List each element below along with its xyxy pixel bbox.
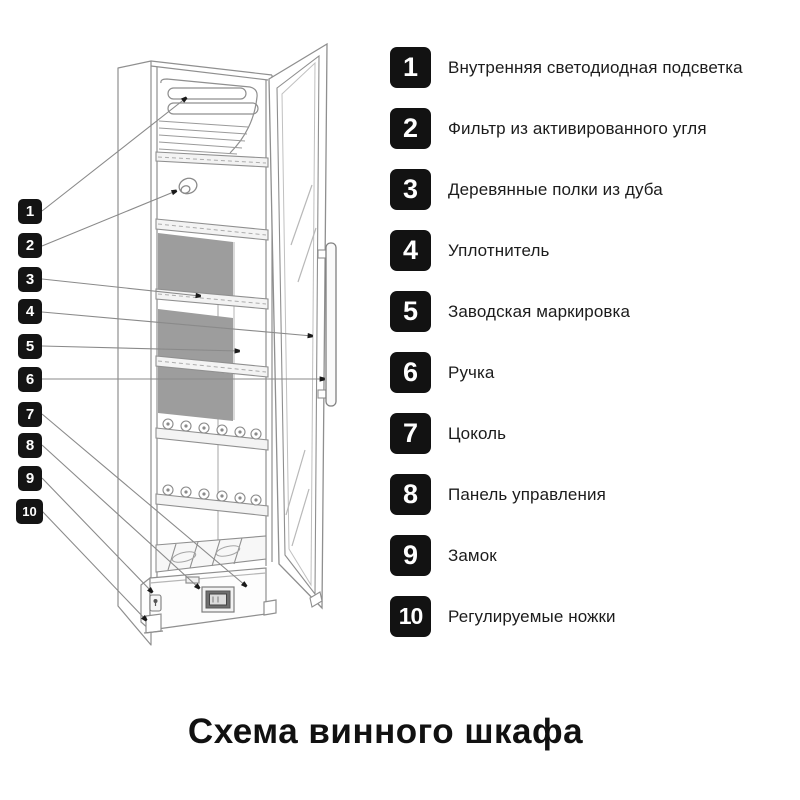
legend: 1 Внутренняя светодиодная подсветка 2 Фи… [390,47,743,657]
legend-row-6: 6 Ручка [390,352,743,393]
callout-badge-1: 1 [18,199,42,224]
callout-badge-4: 4 [18,299,42,324]
legend-row-7: 7 Цоколь [390,413,743,454]
legend-row-1: 1 Внутренняя светодиодная подсветка [390,47,743,88]
page-title: Схема винного шкафа [0,712,800,752]
cooling-fins [159,121,248,154]
legend-row-9: 9 Замок [390,535,743,576]
legend-badge-3: 3 [390,169,431,210]
legend-badge-7: 7 [390,413,431,454]
lock [150,595,161,611]
legend-label-9: Замок [448,546,497,566]
factory-marking-panel [158,309,233,364]
callout-badge-6: 6 [18,367,42,392]
glass-door [269,44,327,608]
legend-label-4: Уплотнитель [448,241,549,261]
legend-row-5: 5 Заводская маркировка [390,291,743,332]
callout-badge-2: 2 [18,233,42,258]
callout-badge-9: 9 [18,466,42,491]
carbon-filter [177,176,199,196]
legend-row-8: 8 Панель управления [390,474,743,515]
legend-badge-10: 10 [390,596,431,637]
cabinet-left-panel [118,61,151,645]
legend-badge-2: 2 [390,108,431,149]
legend-row-10: 10 Регулируемые ножки [390,596,743,637]
legend-badge-5: 5 [390,291,431,332]
legend-row-3: 3 Деревянные полки из дуба [390,169,743,210]
callout-badge-5: 5 [18,334,42,359]
legend-label-1: Внутренняя светодиодная подсветка [448,58,743,78]
legend-label-8: Панель управления [448,485,606,505]
callout-badge-10: 10 [16,499,43,524]
callout-badge-7: 7 [18,402,42,427]
legend-badge-6: 6 [390,352,431,393]
callout-badge-8: 8 [18,433,42,458]
control-panel-display [202,587,234,612]
bottle-shelves [156,419,268,516]
legend-row-2: 2 Фильтр из активированного угля [390,108,743,149]
legend-row-4: 4 Уплотнитель [390,230,743,271]
wine-cabinet-diagram-page: 1 2 3 4 5 6 7 8 9 10 1 Внутренняя светод… [0,0,800,800]
led-light [161,79,258,153]
back-panels [158,233,233,421]
legend-badge-8: 8 [390,474,431,515]
legend-label-10: Регулируемые ножки [448,607,616,627]
legend-label-2: Фильтр из активированного угля [448,119,707,139]
legend-label-5: Заводская маркировка [448,302,630,322]
display-rack [156,536,266,572]
legend-badge-4: 4 [390,230,431,271]
legend-label-7: Цоколь [448,424,506,444]
legend-label-3: Деревянные полки из дуба [448,180,663,200]
legend-badge-9: 9 [390,535,431,576]
legend-label-6: Ручка [448,363,494,383]
legend-badge-1: 1 [390,47,431,88]
callout-badge-3: 3 [18,267,42,292]
